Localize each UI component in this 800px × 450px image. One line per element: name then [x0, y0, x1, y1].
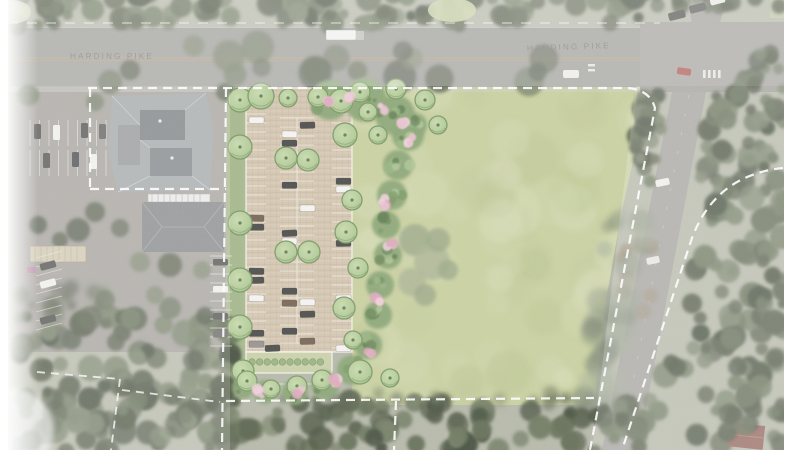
film-grain: [8, 0, 784, 450]
aerial-site-plan: HARDING PIKE HARDING PIKE: [0, 0, 800, 450]
